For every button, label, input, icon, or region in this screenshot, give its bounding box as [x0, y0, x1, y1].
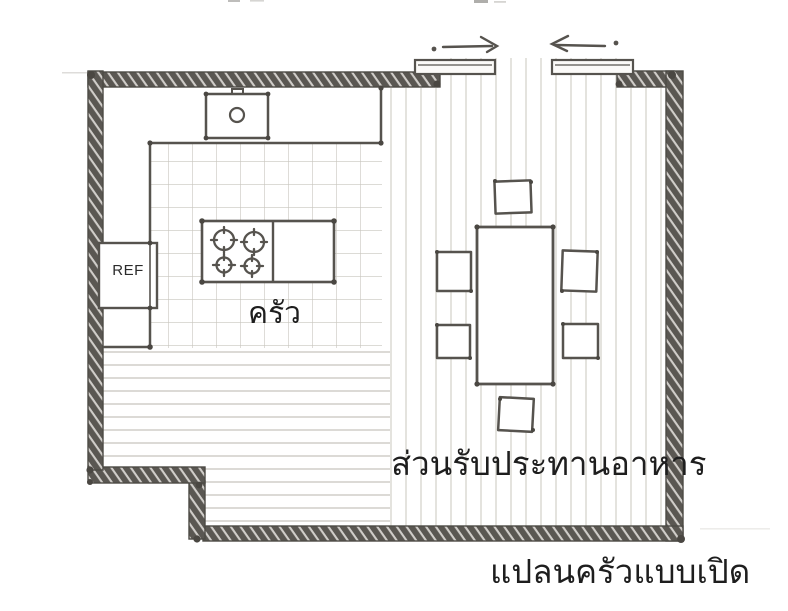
dining-table — [474, 224, 555, 386]
left-arrow-head — [481, 37, 497, 52]
dining-area-label: ส่วนรับประทานอาหาร — [391, 443, 707, 484]
right-arrow-head — [552, 36, 568, 51]
right-arrow-shaft — [556, 45, 605, 46]
step-wall-vertical — [189, 481, 205, 539]
left-arrow-dot — [432, 47, 437, 52]
sliding-door-right-leaf — [552, 60, 633, 74]
sliding-door-left-leaf — [415, 60, 495, 74]
chair-right-upper — [561, 250, 597, 291]
left-arrow-shaft — [443, 46, 492, 47]
chair-bottom — [498, 397, 534, 432]
right-arrow-dot — [614, 41, 619, 46]
kitchen-lower-floor-lines — [103, 350, 390, 526]
refrigerator-label: REF — [99, 262, 157, 281]
top-wall-left-segment — [88, 72, 440, 87]
chair-right-lower — [563, 324, 598, 358]
kitchen-sink — [204, 89, 271, 140]
door-slide-arrows — [432, 36, 619, 52]
kitchen-label: ครัว — [248, 295, 301, 333]
chair-left-upper — [437, 252, 471, 291]
floor-plan-drawing — [0, 0, 788, 611]
plan-caption: แปลนครัวแบบเปิด — [490, 551, 750, 592]
sink-basin — [206, 94, 268, 138]
chair-top — [494, 180, 531, 213]
floor-plan-sketch: ครัว REF ส่วนรับประทานอาหาร แปลนครัวแบบเ… — [0, 0, 788, 611]
bottom-wall — [203, 526, 683, 541]
cooktop — [199, 218, 337, 285]
step-wall-horizontal — [88, 467, 205, 483]
chair-left-lower — [437, 325, 470, 358]
